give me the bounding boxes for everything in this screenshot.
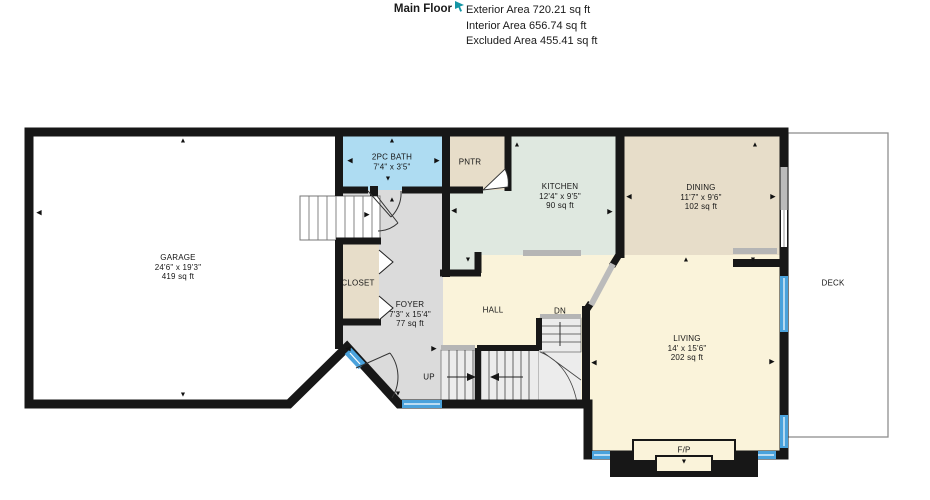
room-dining xyxy=(620,132,784,255)
floor-plan-svg xyxy=(0,0,930,500)
floor-plan-page: Main Floor Exterior Area 720.21 sq ft In… xyxy=(0,0,930,500)
room-closet xyxy=(343,241,379,322)
fireplace xyxy=(610,440,758,477)
deck-outline xyxy=(788,133,888,437)
room-bath xyxy=(343,132,446,190)
room-garage xyxy=(29,132,343,404)
